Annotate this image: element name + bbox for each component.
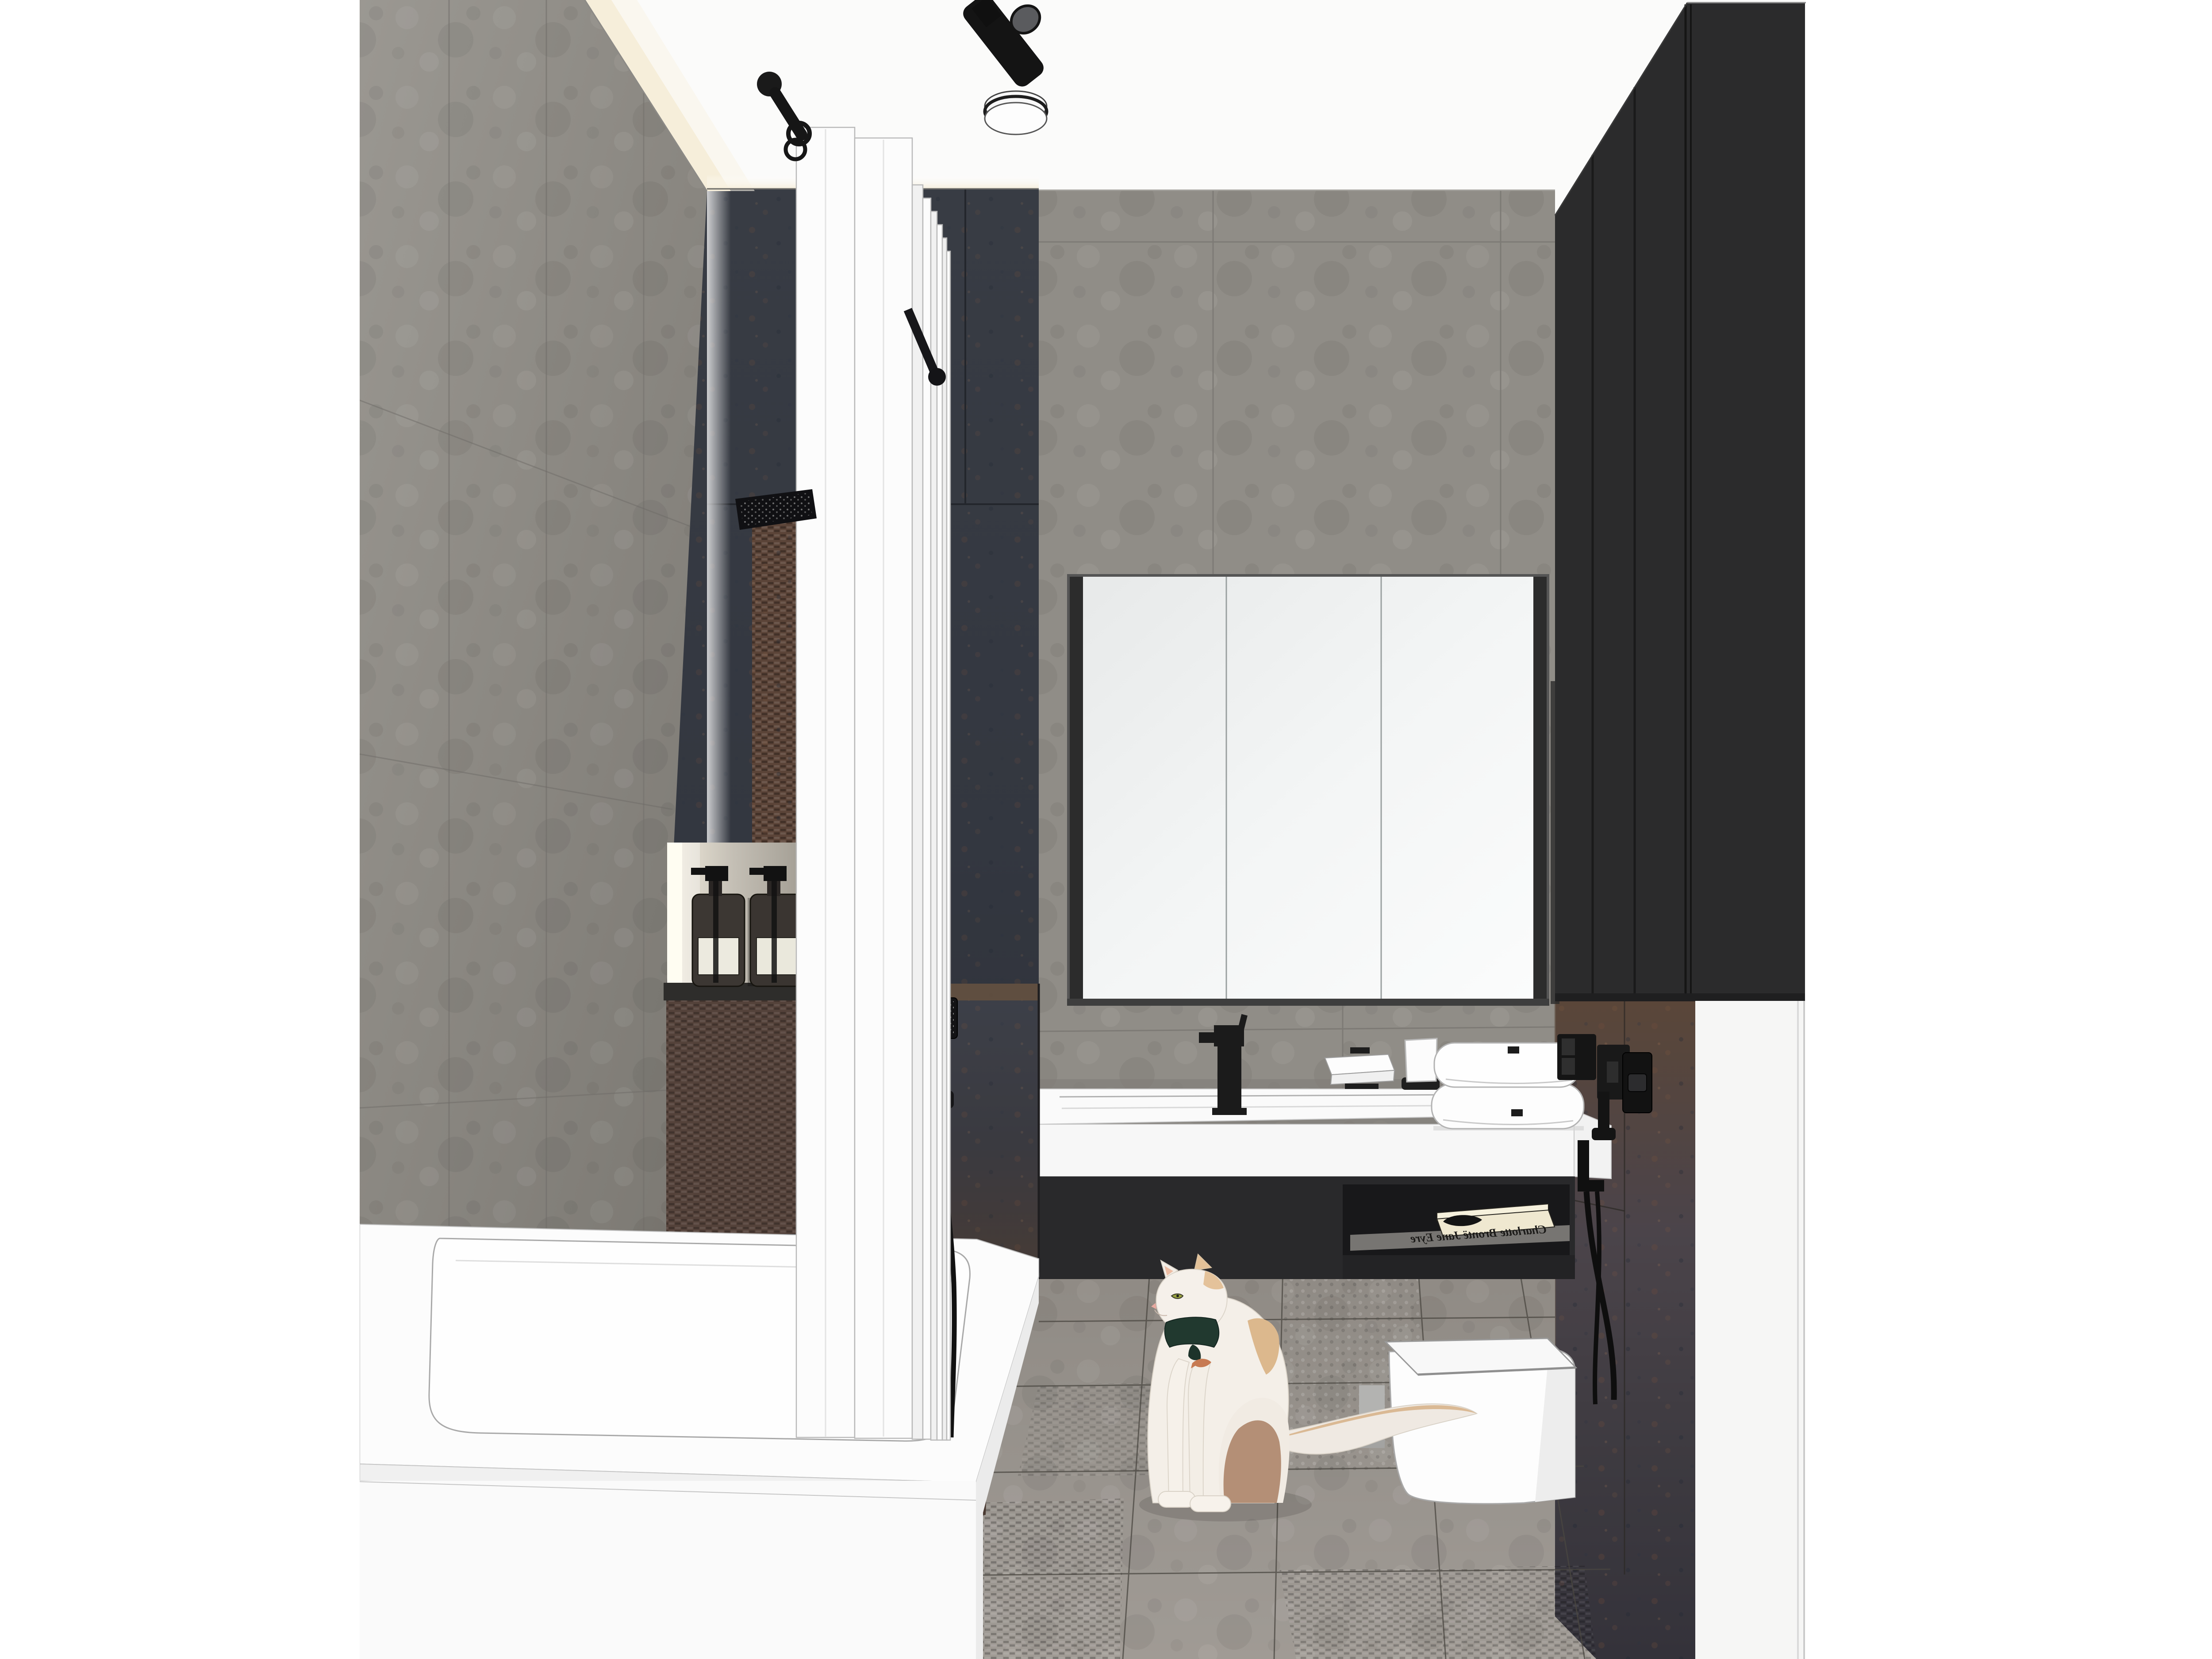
white-panel-below: [1695, 1001, 1805, 1659]
screen-pleat: [937, 225, 942, 1440]
dispenser-spout: [691, 868, 707, 875]
screen-pleat: [931, 211, 937, 1440]
towel-tag: [1511, 1109, 1523, 1116]
dispenser-tube: [713, 881, 718, 983]
dispenser-pump: [705, 866, 728, 881]
socket-outlet: [1562, 1038, 1575, 1055]
rust-tiles-weave: [666, 997, 814, 1234]
sprayer-holder: [1592, 1128, 1616, 1140]
sink-front: [1037, 1124, 1574, 1176]
dish-wall-clip: [1350, 1047, 1370, 1054]
bathroom-rendering: Charlotte Brontë Jane Eyre: [0, 0, 2212, 1659]
niche-led-strip: [667, 843, 682, 995]
screen-pleat: [923, 198, 931, 1439]
mirror-end-panel-left: [1070, 577, 1083, 1000]
tumbler-cup: [1405, 1038, 1437, 1082]
left-wall-texture: [360, 0, 707, 1238]
cat-bandana: [1165, 1317, 1219, 1347]
sprayer-handle: [1598, 1092, 1609, 1134]
sprayer-elbow: [1578, 1180, 1604, 1192]
dish-bracket: [1345, 1084, 1379, 1089]
dispenser-spout: [749, 868, 765, 875]
flush-button: [1628, 1074, 1647, 1092]
arm-flange: [928, 368, 946, 386]
right-margin: [1806, 0, 2212, 1659]
shower-niche: [664, 843, 818, 1000]
cabinet-bottom-edge: [1555, 993, 1805, 1001]
faucet-body: [1217, 1040, 1241, 1111]
screen-pleat: [942, 238, 947, 1440]
faucet-spout: [1199, 1032, 1217, 1043]
switch-rocker: [1607, 1061, 1618, 1083]
left-margin: [0, 0, 360, 1659]
screen-pleat: [912, 185, 923, 1439]
shelf-front-rail: [1343, 1255, 1575, 1279]
cat-pupil: [1176, 1295, 1179, 1297]
cat-paw: [1190, 1496, 1231, 1512]
scene-canvas: Charlotte Brontë Jane Eyre: [0, 0, 2212, 1659]
screen-pleat: [947, 251, 950, 1440]
light-drum-bottom: [985, 103, 1047, 134]
socket-outlet: [1562, 1058, 1575, 1075]
mirror-bottom-shadow: [1067, 999, 1549, 1006]
mirror-glass: [1070, 577, 1547, 1000]
dispenser-pump: [764, 866, 787, 881]
mirror-end-panel-right: [1533, 577, 1547, 1000]
sprayer-pipe: [1578, 1140, 1589, 1184]
dispenser-tube: [772, 881, 777, 983]
floor-weave-tile: [1279, 1566, 1596, 1659]
mirror-cabinet: [1067, 574, 1559, 1006]
tub-apron: [360, 1481, 976, 1659]
towel-tag: [1508, 1046, 1519, 1054]
flush-ceiling-light: [985, 91, 1047, 134]
corner-light-glow: [707, 191, 731, 846]
